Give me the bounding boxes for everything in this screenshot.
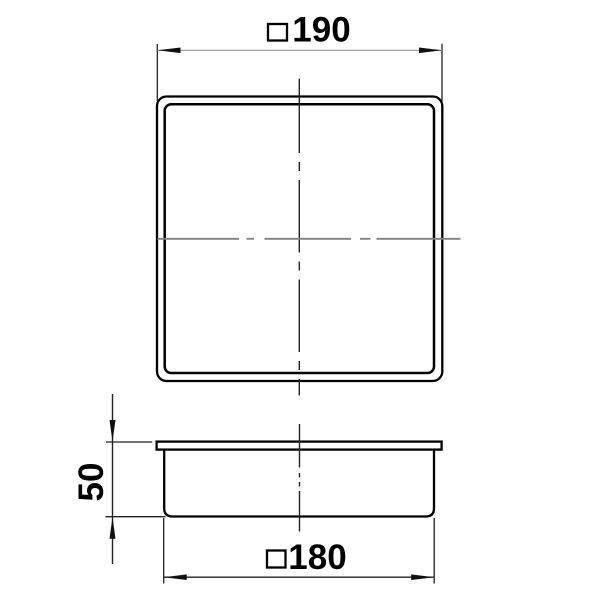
svg-text:190: 190 xyxy=(292,11,350,50)
svg-text:180: 180 xyxy=(288,538,346,577)
svg-text:50: 50 xyxy=(72,463,111,502)
